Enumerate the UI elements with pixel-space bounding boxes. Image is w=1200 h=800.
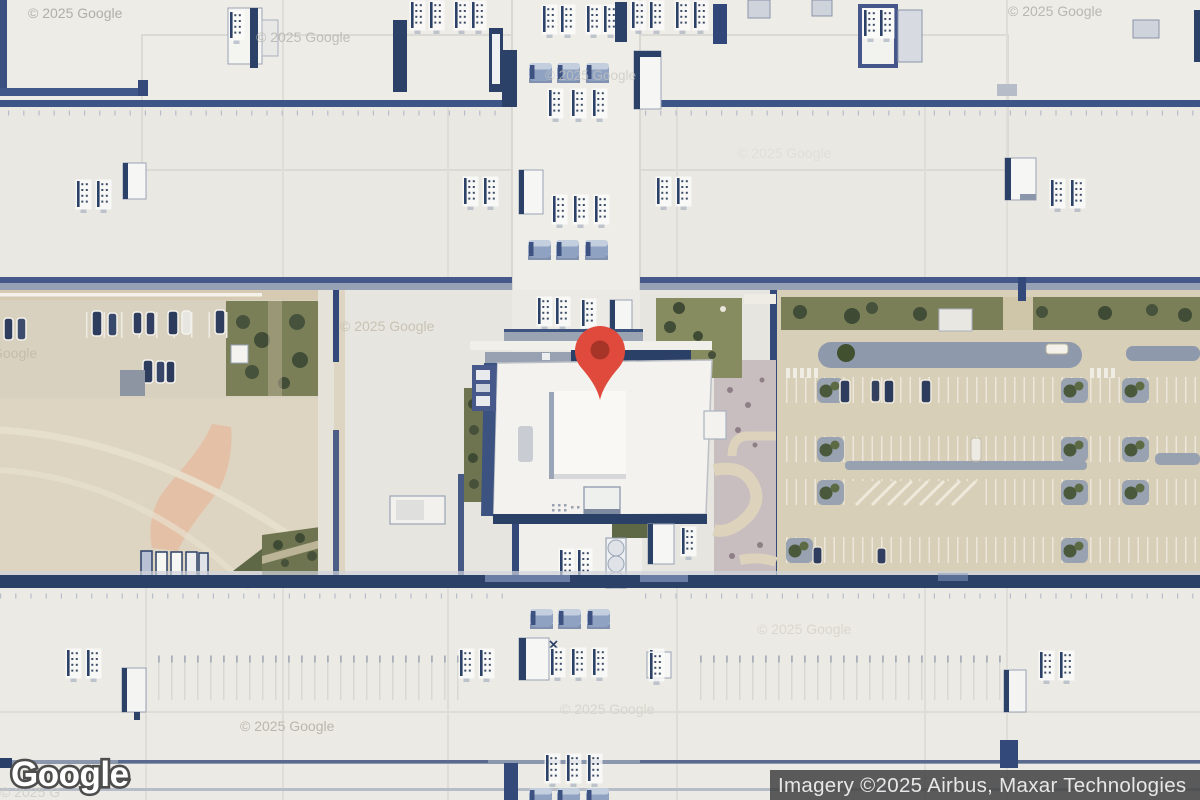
svg-text:© 2025 Google: © 2025 Google [28,5,123,21]
svg-text:Imagery ©2025 Airbus, Maxar Te: Imagery ©2025 Airbus, Maxar Technologies [778,774,1186,797]
svg-text:© 2025 Google: © 2025 Google [340,318,435,334]
svg-text:© 2025 Google: © 2025 Google [545,68,636,83]
svg-text:Google: Google [11,755,129,794]
svg-text:© 2025 Google: © 2025 Google [1008,3,1103,19]
svg-text:© 2025 Google: © 2025 Google [560,701,655,717]
svg-text:© 2025 Google: © 2025 Google [757,621,852,637]
svg-text:Google: Google [0,345,37,361]
svg-text:© 2025 Google: © 2025 Google [737,145,832,161]
svg-text:© 2025 Google: © 2025 Google [240,718,335,734]
svg-text:© 2025 Google: © 2025 Google [256,29,351,45]
